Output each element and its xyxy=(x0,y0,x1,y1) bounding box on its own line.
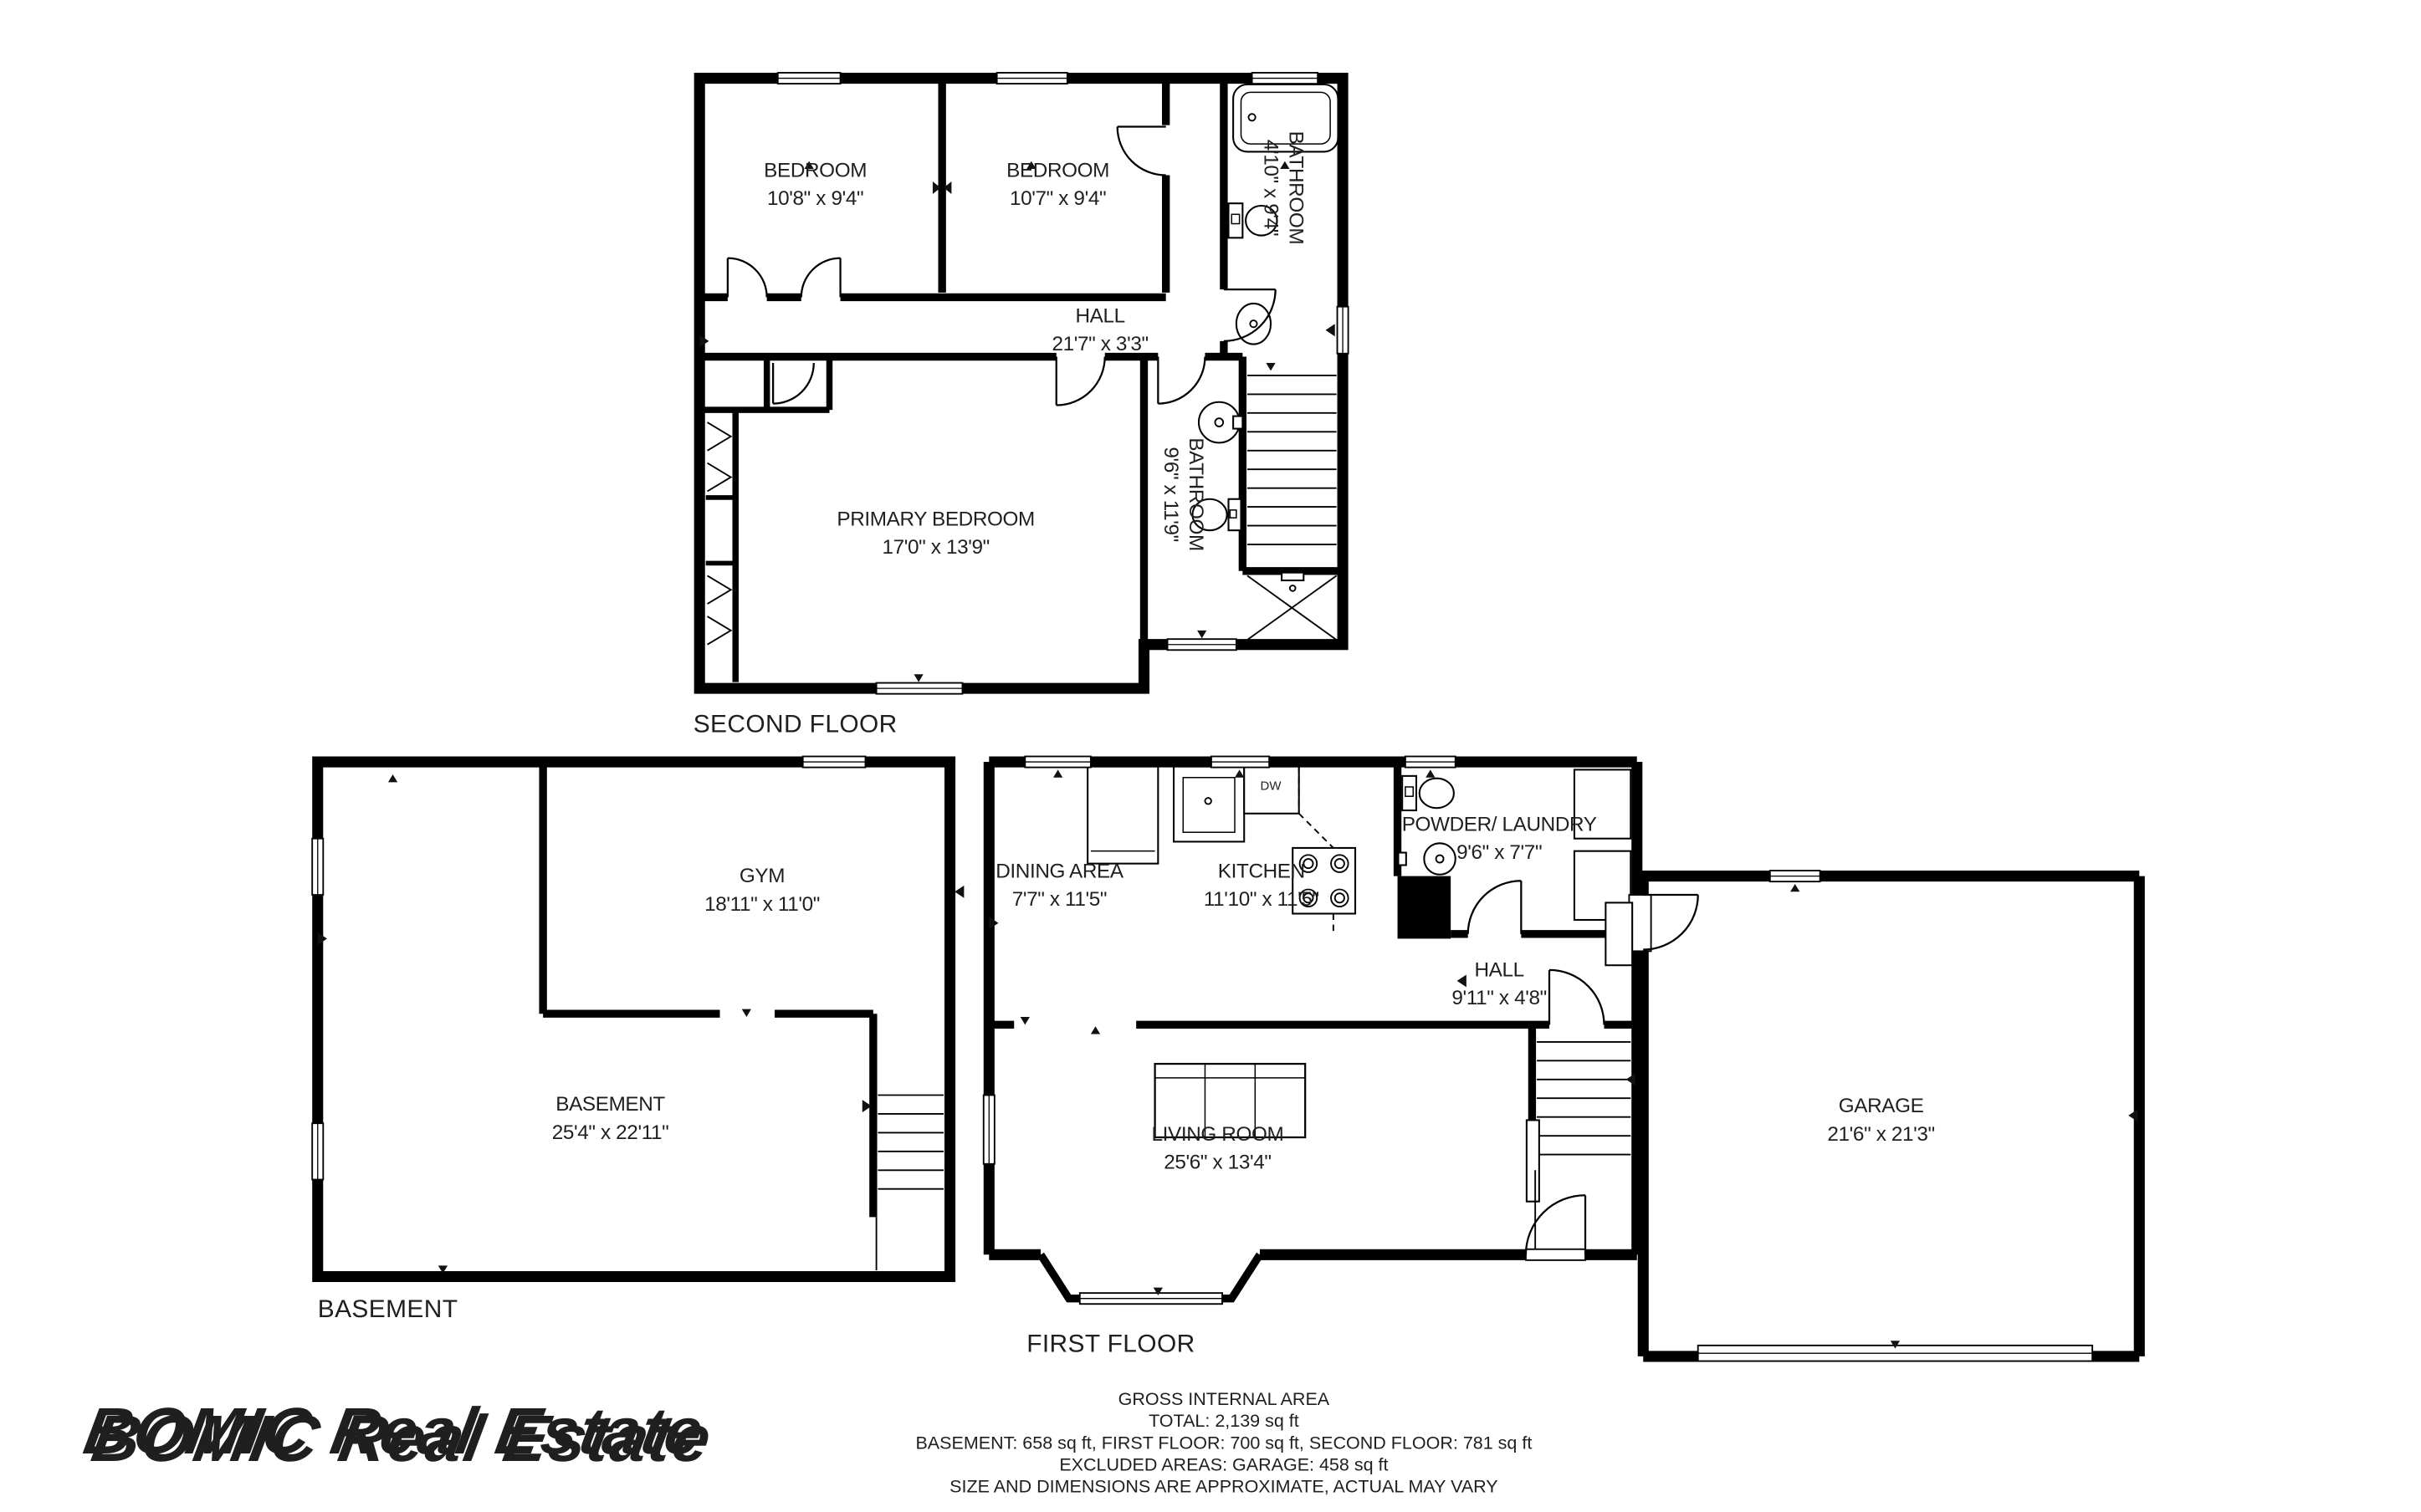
window xyxy=(1252,73,1318,84)
garage-markers xyxy=(1790,884,2137,1121)
hall-1f-label: HALL xyxy=(1474,958,1523,981)
closet-bifold-symbols xyxy=(708,422,731,645)
window xyxy=(1211,756,1269,767)
primary-closet-dividers xyxy=(706,498,736,564)
basement-interior-walls xyxy=(543,767,873,1218)
bay-window-walls xyxy=(1041,1254,1260,1298)
powder-laundry-label: POWDER/ LAUNDRY xyxy=(1402,813,1597,835)
second-floor-plan: BEDROOM 10'8" x 9'4" BEDROOM 10'7" x 9'4… xyxy=(694,73,1349,738)
washer-dryer xyxy=(1574,769,1630,920)
hall-1f-dims: 9'11" x 4'8" xyxy=(1451,987,1546,1009)
window xyxy=(1770,871,1820,881)
floor-plan-page: BEDROOM 10'8" x 9'4" BEDROOM 10'7" x 9'4… xyxy=(0,0,2421,1511)
gym-label: GYM xyxy=(740,865,785,887)
basement-plan: GYM 18'11" x 11'0" BASEMENT 25'4" x 22'1… xyxy=(312,756,964,1323)
basement-exterior-walls xyxy=(318,762,950,1276)
window xyxy=(1168,639,1236,650)
garage-dims: 21'6" x 21'3" xyxy=(1827,1123,1934,1146)
window xyxy=(312,839,323,895)
chimney-block xyxy=(1398,876,1451,939)
gym-dims: 18'11" x 11'0" xyxy=(704,893,820,916)
window xyxy=(312,1123,323,1179)
window xyxy=(1338,307,1349,354)
powder-laundry-dims: 9'6" x 7'7" xyxy=(1456,841,1542,864)
primary-bedroom-label: PRIMARY BEDROOM xyxy=(837,508,1035,531)
first-floor-title: FIRST FLOOR xyxy=(1026,1330,1195,1357)
second-floor-title: SECOND FLOOR xyxy=(694,710,898,738)
hall-closet-walls xyxy=(699,357,829,682)
window xyxy=(984,1095,995,1163)
dining-area-dims: 7'7" x 11'5" xyxy=(1012,888,1107,911)
staircase-first-floor xyxy=(1527,1042,1630,1250)
basement-windows xyxy=(312,756,865,1179)
basement-room-label: BASEMENT xyxy=(555,1093,665,1116)
basement-title: BASEMENT xyxy=(318,1295,458,1323)
primary-bedroom-dims: 17'0" x 13'9" xyxy=(882,536,989,559)
footer-floor-areas: BASEMENT: 658 sq ft, FIRST FLOOR: 700 sq… xyxy=(915,1433,1532,1453)
garage-plan: GARAGE 21'6" x 21'3" xyxy=(1637,871,2139,1361)
bay-window xyxy=(1080,1293,1222,1304)
sink-large-bathroom xyxy=(1199,402,1242,443)
basement-markers xyxy=(318,774,965,1274)
toilet-powder-room xyxy=(1402,776,1454,810)
bathroom-small-label: BATHROOM xyxy=(1284,131,1307,245)
window xyxy=(997,73,1067,84)
footer-area-summary: GROSS INTERNAL AREA TOTAL: 2,139 sq ft B… xyxy=(915,1389,1532,1497)
bathroom-large-dims: 9'6" x 11'9" xyxy=(1159,447,1182,541)
dining-area-label: DINING AREA xyxy=(996,860,1124,882)
first-floor-plan: DW xyxy=(984,756,1698,1357)
staircase-second-floor xyxy=(1247,363,1337,544)
garage-label: GARAGE xyxy=(1839,1095,1924,1117)
shower-stall xyxy=(1247,573,1337,640)
living-room-label: LIVING ROOM xyxy=(1151,1123,1283,1146)
sink-powder-room xyxy=(1398,843,1455,874)
footer-disclaimer: SIZE AND DIMENSIONS ARE APPROXIMATE, ACT… xyxy=(949,1477,1498,1497)
window xyxy=(877,683,963,694)
bedroom-left-label: BEDROOM xyxy=(764,159,867,181)
window xyxy=(778,73,841,84)
bathroom-large-label: BATHROOM xyxy=(1185,437,1207,551)
bedroom-left-dims: 10'8" x 9'4" xyxy=(767,187,863,210)
window xyxy=(1405,756,1456,767)
window xyxy=(1025,756,1091,767)
bedroom-right-dims: 10'7" x 9'4" xyxy=(1010,187,1106,210)
basement-room-dims: 25'4" x 22'11" xyxy=(552,1121,669,1144)
hall-2f-label: HALL xyxy=(1075,304,1124,327)
garage-door xyxy=(1698,1341,2092,1361)
bedroom-right-label: BEDROOM xyxy=(1006,159,1109,181)
staircase-basement xyxy=(877,1095,944,1270)
hall-2f-dims: 21'7" x 3'3" xyxy=(1052,333,1148,355)
footer-excluded-areas: EXCLUDED AREAS: GARAGE: 458 sq ft xyxy=(1059,1454,1388,1474)
footer-total: TOTAL: 2,139 sq ft xyxy=(1149,1411,1299,1431)
kitchen-dims: 11'10" x 11'5" xyxy=(1204,888,1319,911)
watermark-text: BOMIC Real Estate xyxy=(79,1393,710,1467)
living-room-dims: 25'6" x 13'4" xyxy=(1164,1151,1271,1173)
watermark: BOMIC Real Estate BOMIC Real Estate xyxy=(79,1393,718,1475)
bathroom-small-dims: 4'10" x 9'4" xyxy=(1260,140,1282,236)
kitchen-label: KITCHEN xyxy=(1218,860,1305,882)
footer-gross-internal-area: GROSS INTERNAL AREA xyxy=(1118,1389,1330,1409)
window xyxy=(803,756,866,767)
dishwasher-label: DW xyxy=(1261,779,1282,794)
